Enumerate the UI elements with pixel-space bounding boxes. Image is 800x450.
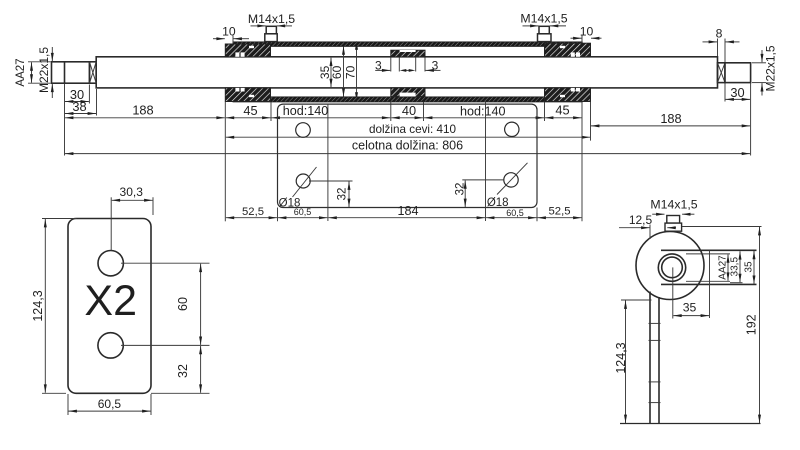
svg-text:38: 38 — [72, 99, 86, 114]
svg-text:hod:140: hod:140 — [283, 104, 329, 118]
svg-text:10: 10 — [222, 24, 236, 38]
svg-text:52,5: 52,5 — [549, 205, 571, 217]
svg-text:30,3: 30,3 — [120, 185, 144, 199]
svg-text:12,5: 12,5 — [629, 213, 653, 227]
svg-text:192: 192 — [745, 314, 759, 335]
svg-text:60: 60 — [176, 297, 190, 311]
svg-text:dolžina cevi: 410: dolžina cevi: 410 — [369, 123, 457, 136]
svg-text:M14x1,5: M14x1,5 — [520, 12, 567, 26]
svg-text:124,3: 124,3 — [31, 290, 45, 321]
svg-text:M22x1,5: M22x1,5 — [764, 45, 778, 91]
svg-text:30: 30 — [730, 85, 744, 100]
svg-text:60,5: 60,5 — [506, 208, 524, 218]
svg-text:45: 45 — [243, 103, 257, 118]
svg-text:M22x1,5: M22x1,5 — [37, 47, 51, 93]
svg-text:8: 8 — [716, 27, 723, 41]
svg-text:celotna dolžina: 806: celotna dolžina: 806 — [352, 139, 463, 153]
svg-text:35: 35 — [683, 301, 697, 315]
svg-text:52,5: 52,5 — [242, 206, 264, 218]
svg-text:40: 40 — [402, 103, 416, 118]
svg-text:188: 188 — [660, 111, 681, 126]
svg-text:45: 45 — [555, 103, 569, 118]
svg-text:M14x1,5: M14x1,5 — [650, 198, 697, 212]
svg-text:AA27: AA27 — [717, 255, 728, 280]
svg-text:35: 35 — [743, 261, 754, 273]
svg-text:70: 70 — [344, 65, 358, 79]
svg-text:hod:140: hod:140 — [460, 104, 506, 118]
svg-text:Ø18: Ø18 — [487, 197, 509, 209]
svg-text:33,5: 33,5 — [729, 257, 740, 277]
svg-text:60,5: 60,5 — [98, 397, 122, 411]
svg-text:32: 32 — [455, 183, 467, 196]
svg-text:32: 32 — [337, 188, 349, 201]
svg-text:M14x1,5: M14x1,5 — [248, 12, 295, 26]
svg-text:X2: X2 — [84, 277, 137, 325]
svg-text:188: 188 — [132, 103, 153, 118]
svg-text:184: 184 — [397, 204, 418, 218]
svg-text:60,5: 60,5 — [294, 207, 312, 217]
svg-text:32: 32 — [176, 364, 190, 378]
svg-text:AA27: AA27 — [15, 58, 27, 86]
svg-text:124,3: 124,3 — [614, 342, 628, 373]
svg-text:60: 60 — [330, 65, 344, 79]
